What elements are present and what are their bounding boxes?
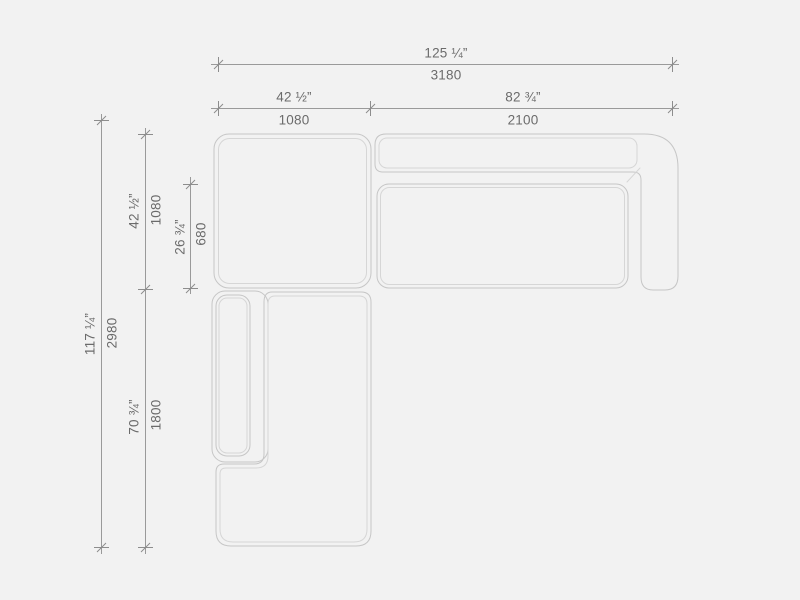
chaise-armrest-outline — [212, 291, 268, 462]
module-right-arm-sofa — [375, 134, 678, 290]
dim-overall-width-inches: 125 ¼” — [424, 46, 467, 60]
chaise-seat-inner-line — [220, 296, 367, 542]
dim-overall-depth-inches: 117 ¼” — [83, 313, 97, 355]
sofa-back-cushion — [379, 138, 637, 168]
chaise-armrest-cushion — [216, 295, 250, 456]
dimension-drawing: 125 ¼” 3180 42 ½” 1080 82 ¾” 2100 117 ¼”… — [0, 0, 800, 600]
dim-chaise-length-mm: 1800 — [149, 400, 163, 431]
dim-right-section-width-mm: 2100 — [508, 113, 539, 127]
dim-left-section-width-inches: 42 ½” — [276, 90, 312, 104]
sofa-seat-cushion — [377, 184, 628, 288]
dim-seat-depth-mm: 680 — [194, 222, 208, 245]
ottoman-outline — [214, 134, 371, 288]
dim-overall-width-mm: 3180 — [431, 68, 462, 82]
dimension-ticks — [94, 57, 677, 552]
sofa-modules — [212, 134, 678, 546]
dim-chaise-length-inches: 70 ¾” — [127, 399, 141, 435]
module-left-chaise — [212, 291, 371, 546]
dim-seat-depth-inches: 26 ¾” — [173, 219, 187, 255]
sofa-seat-cushion-inner-line — [381, 188, 625, 285]
module-corner-ottoman — [214, 134, 371, 288]
chaise-armrest-cushion-inner-line — [219, 298, 247, 453]
dim-top-section-depth-mm: 1080 — [149, 195, 163, 226]
ottoman-inner-line — [219, 139, 367, 284]
chaise-seat-outline — [216, 292, 371, 546]
sofa-line-drawing — [0, 0, 800, 600]
dim-right-section-width-inches: 82 ¾” — [505, 90, 541, 104]
dim-left-section-width-mm: 1080 — [279, 113, 310, 127]
dim-overall-depth-mm: 2980 — [105, 318, 119, 349]
sofa-back-and-arm-outline — [375, 134, 678, 290]
dim-top-section-depth-inches: 42 ½” — [127, 193, 141, 229]
sofa-corner-seam — [627, 168, 640, 182]
